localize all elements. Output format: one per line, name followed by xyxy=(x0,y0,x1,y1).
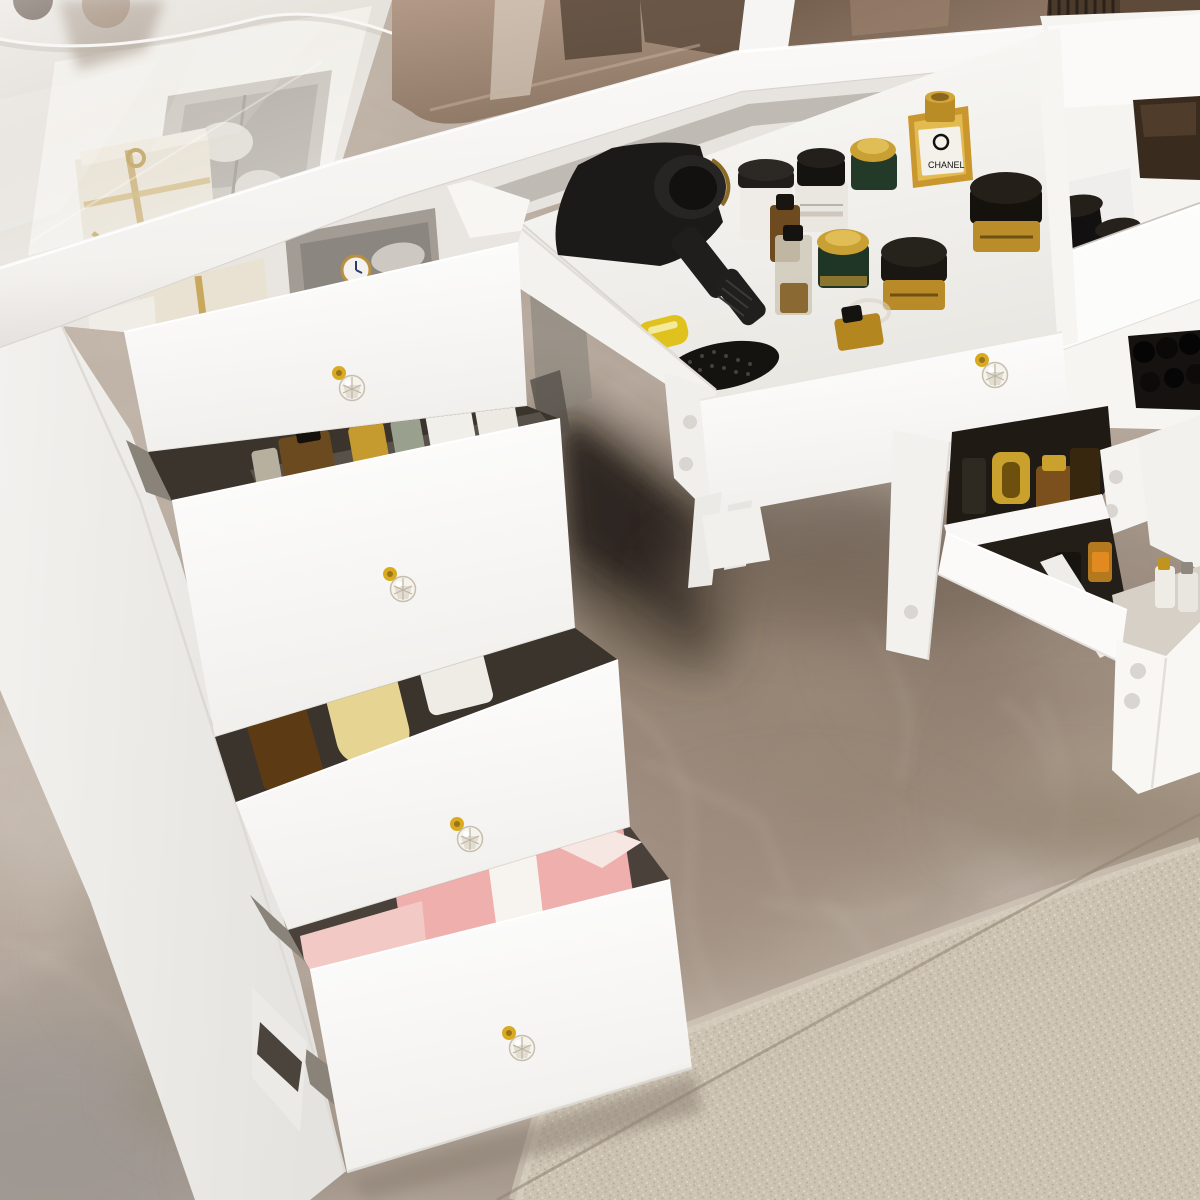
svg-text:CHANEL: CHANEL xyxy=(928,160,965,170)
